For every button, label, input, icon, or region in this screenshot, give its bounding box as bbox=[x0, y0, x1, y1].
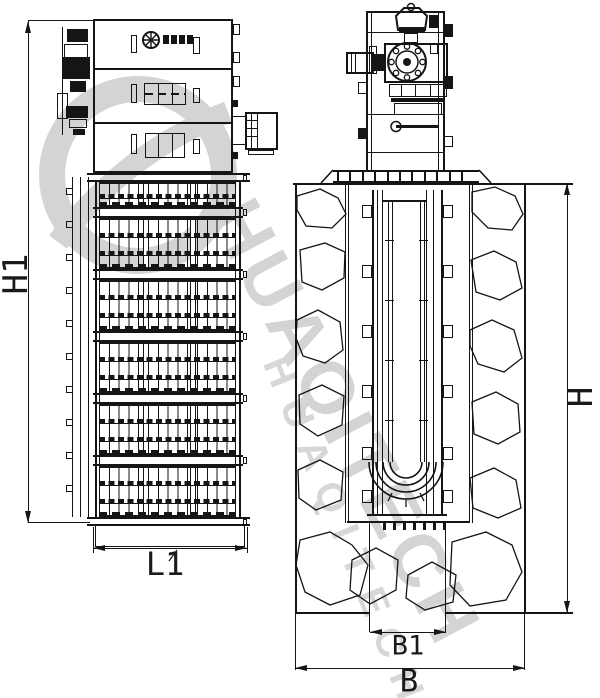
frame-tooth bbox=[393, 523, 396, 530]
support-arm bbox=[396, 125, 438, 128]
dimension-arrow bbox=[295, 665, 307, 671]
dimension-arrow bbox=[370, 629, 382, 635]
rail-tick bbox=[66, 287, 73, 294]
grid-bar-row bbox=[99, 313, 236, 318]
rail-tick bbox=[66, 188, 73, 195]
guide-rail bbox=[72, 177, 73, 517]
rail-bracket bbox=[444, 24, 453, 37]
hatch-dash bbox=[145, 93, 185, 95]
chain-pin bbox=[385, 300, 394, 301]
rail-tick bbox=[66, 353, 73, 360]
rail-guide-shoe bbox=[362, 325, 372, 338]
drive-block bbox=[73, 129, 85, 135]
chute-lip bbox=[248, 150, 274, 155]
grid-column-divider bbox=[190, 344, 196, 391]
housing-bar bbox=[391, 98, 445, 102]
chain-pin bbox=[385, 360, 394, 361]
head-divider bbox=[93, 68, 233, 70]
rail-guide-shoe bbox=[443, 447, 453, 460]
screen-grid-section bbox=[99, 280, 236, 331]
rail-guide-shoe bbox=[362, 447, 372, 460]
b1-ext bbox=[369, 523, 370, 632]
panel-slot bbox=[193, 88, 200, 103]
screen-grid-section bbox=[99, 182, 236, 207]
guide-rail bbox=[88, 177, 89, 517]
dimension-arrow bbox=[25, 21, 31, 33]
flange-bolt bbox=[436, 170, 438, 182]
motor-fin bbox=[351, 52, 352, 74]
rail-bracket bbox=[358, 128, 367, 139]
frame-tooth bbox=[403, 523, 406, 530]
channel-inner-wall bbox=[348, 183, 349, 523]
chain-pin bbox=[419, 360, 428, 361]
drive-block bbox=[64, 44, 88, 58]
chain-pin bbox=[419, 300, 428, 301]
gear-housing bbox=[389, 84, 447, 97]
rail-guide-shoe bbox=[362, 205, 372, 218]
channel-inner-wall bbox=[345, 183, 346, 523]
grid-bar-row bbox=[99, 499, 236, 504]
screen-base-band bbox=[87, 517, 250, 526]
band-hook bbox=[243, 209, 247, 216]
band-hook bbox=[243, 175, 247, 182]
housing-line bbox=[401, 84, 402, 97]
screen-rail bbox=[372, 190, 374, 515]
rail-tick bbox=[66, 320, 73, 327]
column-rail bbox=[371, 12, 372, 172]
flange-bolt bbox=[461, 170, 463, 182]
band-hook bbox=[243, 519, 247, 526]
dimension-arrow bbox=[25, 511, 31, 523]
motor-fin bbox=[355, 52, 356, 74]
flange-bolt bbox=[374, 170, 376, 182]
channel-outer-wall bbox=[295, 183, 297, 613]
inspection-hatch bbox=[145, 133, 185, 158]
grid-column-divider bbox=[190, 406, 196, 453]
grid-dashed-row bbox=[99, 326, 236, 329]
grid-bar-row bbox=[99, 194, 236, 199]
grid-column-divider bbox=[190, 282, 196, 329]
dimension-arrow bbox=[93, 545, 105, 551]
rail-guide-shoe bbox=[362, 490, 372, 503]
channel-inner-wall bbox=[472, 183, 473, 523]
screen-separator-plate bbox=[93, 207, 243, 218]
rail-bracket bbox=[444, 136, 453, 147]
side-nub bbox=[233, 24, 240, 35]
rail-fitting bbox=[430, 44, 438, 54]
dimension-arrow bbox=[564, 601, 570, 613]
channel-outer-wall bbox=[524, 183, 526, 613]
side-nub bbox=[233, 76, 240, 87]
grid-column-divider bbox=[190, 220, 196, 267]
drive-block bbox=[70, 81, 86, 92]
screen-rail bbox=[426, 190, 427, 515]
side-nub bbox=[233, 152, 238, 159]
screen-rail bbox=[382, 190, 383, 515]
dimension-arrow bbox=[235, 545, 247, 551]
grid-bar-row bbox=[99, 419, 236, 424]
screen-top-band bbox=[87, 173, 250, 182]
band-hook bbox=[243, 271, 247, 278]
grid-bar-row bbox=[99, 233, 236, 238]
frame-tooth bbox=[383, 523, 386, 530]
logo-text-block bbox=[171, 35, 177, 44]
side-nub bbox=[233, 100, 238, 107]
flange-bolt bbox=[424, 170, 426, 182]
rail-bracket bbox=[358, 82, 367, 94]
frame-tooth bbox=[423, 523, 426, 530]
chute-link bbox=[233, 116, 245, 117]
b-ext bbox=[295, 613, 296, 670]
line-work-layer bbox=[0, 0, 600, 698]
flange-bolt bbox=[411, 170, 413, 182]
hatch-line bbox=[172, 133, 173, 158]
b-dimension-line bbox=[295, 668, 525, 669]
panel-slot bbox=[193, 37, 200, 54]
grid-column-divider bbox=[143, 220, 149, 267]
housing-line bbox=[415, 84, 416, 97]
flange-top bbox=[333, 170, 479, 172]
flange-bolt bbox=[399, 170, 401, 182]
rail-guide-shoe bbox=[362, 265, 372, 278]
flange-bolt bbox=[387, 170, 389, 182]
panel-slot bbox=[193, 139, 200, 154]
flange-bolt bbox=[449, 170, 451, 182]
dimension-arrow bbox=[564, 183, 570, 195]
grid-bar-row bbox=[99, 357, 236, 362]
screen-grid-section bbox=[99, 466, 236, 517]
screen-rail bbox=[433, 190, 434, 515]
grid-column-divider bbox=[143, 282, 149, 329]
chute-line bbox=[245, 136, 257, 137]
drive-shaft bbox=[404, 33, 418, 43]
rail-bracket bbox=[444, 76, 453, 89]
grid-bar-row bbox=[99, 437, 236, 442]
frame-tooth bbox=[413, 523, 416, 530]
dimension-arrow bbox=[513, 665, 525, 671]
grid-dashed-row bbox=[99, 202, 236, 205]
chute-line bbox=[251, 112, 252, 150]
screen-rail bbox=[441, 190, 443, 515]
h-dimension-line bbox=[567, 183, 568, 613]
grid-dashed-row bbox=[99, 450, 236, 453]
head-divider bbox=[93, 122, 233, 124]
b1-ext bbox=[445, 523, 446, 632]
b-ext bbox=[524, 613, 525, 670]
channel-floor bbox=[446, 612, 573, 614]
rail-tick bbox=[66, 386, 73, 393]
column-top bbox=[366, 11, 445, 13]
rail-fitting bbox=[429, 15, 439, 28]
channel-floor bbox=[295, 612, 370, 614]
band-hook bbox=[243, 457, 247, 464]
band-hook bbox=[243, 333, 247, 340]
junction-box bbox=[394, 103, 442, 115]
logo-text-block bbox=[179, 35, 185, 44]
chain-pin bbox=[385, 240, 394, 241]
h1-dimension-line bbox=[28, 21, 29, 523]
rail-guide-shoe bbox=[362, 385, 372, 398]
technical-drawing-canvas: HUAQITECH HUAQITECH bbox=[0, 0, 600, 698]
chute-line bbox=[245, 120, 257, 121]
bottom-frame bbox=[367, 514, 447, 523]
screen-grid-section bbox=[99, 404, 236, 455]
l1-dimension-line bbox=[93, 548, 247, 549]
column-divider bbox=[367, 152, 444, 153]
screen-separator-plate bbox=[93, 393, 243, 404]
grid-dashed-row bbox=[99, 388, 236, 391]
grid-dashed-row bbox=[99, 512, 236, 515]
flange-bolt bbox=[349, 170, 351, 182]
screen-edge bbox=[239, 182, 241, 517]
guide-rail bbox=[80, 177, 81, 517]
screen-rail bbox=[377, 190, 378, 515]
grid-column-divider bbox=[143, 468, 149, 515]
rail-guide-shoe bbox=[443, 385, 453, 398]
side-nub bbox=[233, 52, 240, 63]
flange-bolt bbox=[337, 170, 339, 182]
panel-slot bbox=[131, 35, 137, 53]
screen-separator-plate bbox=[93, 269, 243, 280]
rail-tick bbox=[66, 221, 73, 228]
rail-guide-shoe bbox=[443, 205, 453, 218]
rail-guide-shoe bbox=[443, 490, 453, 503]
screen-edge bbox=[95, 182, 97, 517]
screen-grid-section bbox=[99, 342, 236, 393]
rail-tick bbox=[66, 485, 73, 492]
grid-bar-row bbox=[99, 481, 236, 486]
rail-tick bbox=[66, 419, 73, 426]
discharge-chute bbox=[245, 112, 278, 150]
rail-guide-shoe bbox=[443, 265, 453, 278]
dimension-arrow bbox=[434, 629, 446, 635]
chute-line bbox=[257, 112, 258, 150]
chain-pin bbox=[419, 420, 428, 421]
rail-tick bbox=[66, 254, 73, 261]
guide-strip bbox=[369, 46, 377, 74]
grid-bar-row bbox=[99, 375, 236, 380]
frame-tooth bbox=[433, 523, 436, 530]
chain-pin bbox=[385, 420, 394, 421]
l1-ext bbox=[247, 527, 248, 553]
screen-grid-section bbox=[99, 218, 236, 269]
h1-ext-top bbox=[28, 20, 93, 21]
flange-bolt bbox=[362, 170, 364, 182]
screen-separator-plate bbox=[93, 331, 243, 342]
grid-dashed-row bbox=[99, 264, 236, 267]
panel-slot bbox=[131, 84, 137, 103]
h1-ext-bottom bbox=[28, 522, 90, 523]
grid-column-divider bbox=[190, 468, 196, 515]
ground-line bbox=[293, 183, 573, 185]
housing-line bbox=[430, 84, 431, 97]
grid-column-divider bbox=[143, 406, 149, 453]
gearbox-body bbox=[384, 43, 448, 83]
bracket bbox=[69, 119, 87, 128]
rail-guide-shoe bbox=[443, 325, 453, 338]
logo-text-block bbox=[163, 35, 169, 44]
grid-bar-row bbox=[99, 251, 236, 256]
base-pedestal bbox=[95, 526, 245, 547]
drive-block bbox=[67, 29, 88, 42]
chain-pin bbox=[419, 240, 428, 241]
panel-slot bbox=[131, 134, 137, 154]
chute-link bbox=[233, 144, 245, 145]
rail-tick bbox=[66, 452, 73, 459]
grid-bar-row bbox=[99, 295, 236, 300]
chute-line bbox=[245, 128, 257, 129]
hatch-line bbox=[158, 133, 159, 158]
sprocket-block bbox=[62, 57, 90, 79]
grid-column-divider bbox=[143, 344, 149, 391]
channel-inner-wall bbox=[469, 183, 470, 523]
screen-separator-plate bbox=[93, 455, 243, 466]
band-hook bbox=[243, 395, 247, 402]
drive-block bbox=[66, 106, 88, 118]
